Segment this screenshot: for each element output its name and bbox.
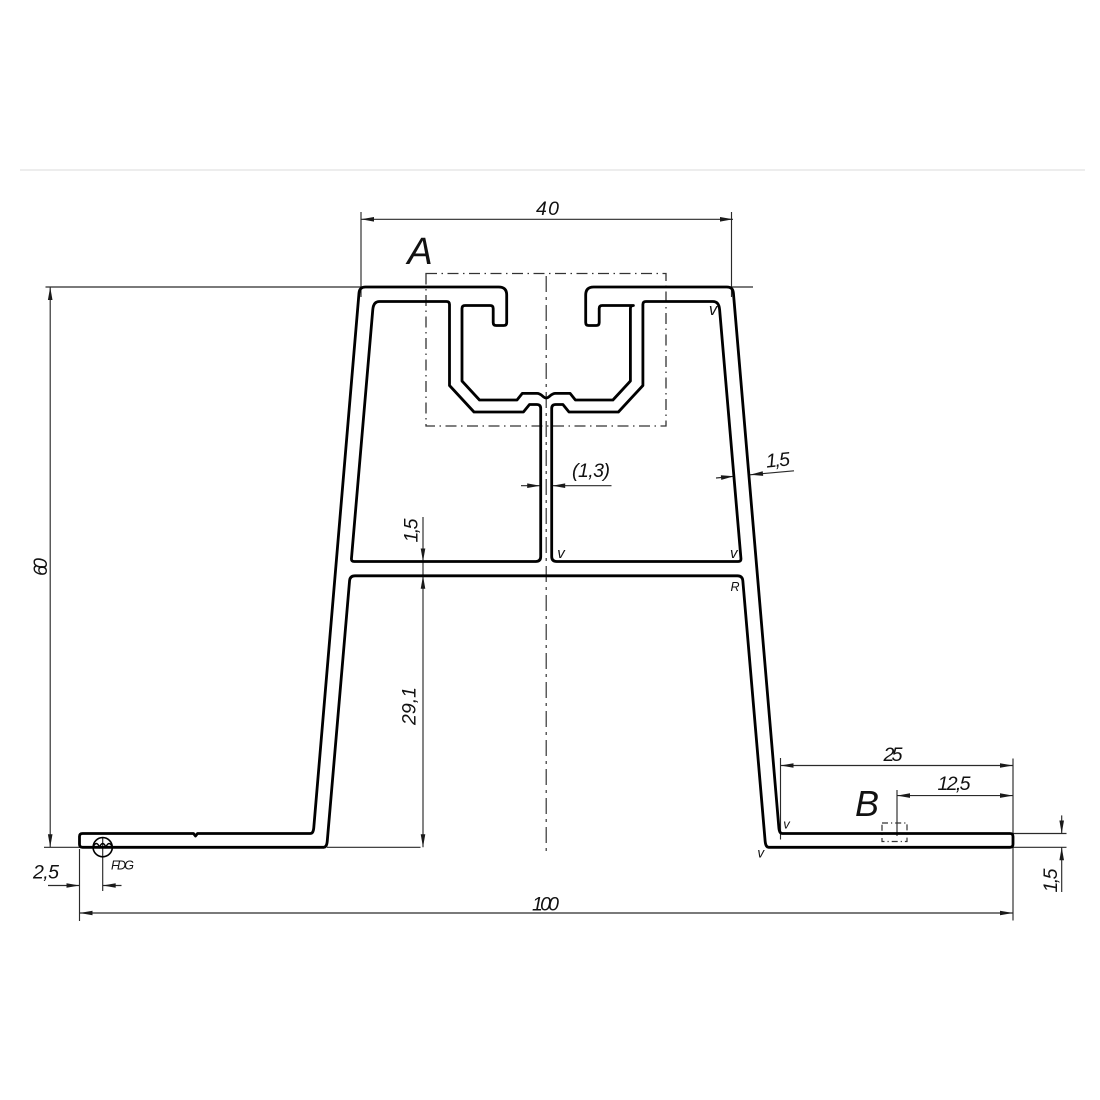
svg-text:B: B [855,783,879,824]
svg-text:2,5: 2,5 [32,862,59,884]
svg-text:1,5: 1,5 [765,448,791,472]
svg-text:12,5: 12,5 [938,773,971,795]
svg-text:(1,3): (1,3) [572,460,610,482]
svg-text:FDG: FDG [111,859,134,873]
svg-text:60: 60 [30,558,52,576]
svg-text:R: R [730,580,739,594]
svg-text:25: 25 [883,744,903,766]
svg-text:A: A [405,231,432,273]
svg-text:100: 100 [532,894,559,916]
svg-text:29,1: 29,1 [399,687,421,726]
svg-text:1,5: 1,5 [401,518,423,542]
svg-text:1,5: 1,5 [1040,868,1062,892]
svg-text:40: 40 [536,198,559,220]
